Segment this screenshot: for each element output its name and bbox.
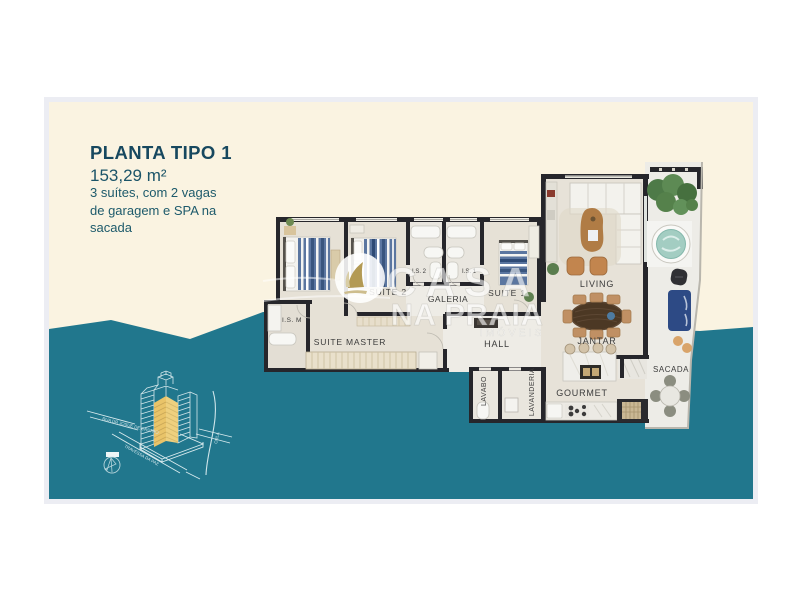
- svg-text:LIVING: LIVING: [580, 279, 614, 289]
- svg-text:SACADA: SACADA: [653, 365, 689, 374]
- svg-text:sacada: sacada: [90, 220, 133, 235]
- svg-text:GOURMET: GOURMET: [556, 388, 608, 398]
- svg-text:de garagem e SPA na: de garagem e SPA na: [90, 203, 217, 218]
- svg-text:SUITE MASTER: SUITE MASTER: [314, 337, 386, 347]
- svg-text:PLANTA TIPO 1: PLANTA TIPO 1: [90, 142, 232, 163]
- svg-text:HALL: HALL: [484, 339, 510, 349]
- svg-text:LAVABO: LAVABO: [481, 376, 488, 406]
- svg-text:LAVANDERIA: LAVANDERIA: [529, 368, 536, 416]
- svg-text:JANTAR: JANTAR: [577, 336, 616, 346]
- svg-text:IMÓVEIS: IMÓVEIS: [480, 326, 545, 339]
- svg-text:3 suítes, com 2 vagas: 3 suítes, com 2 vagas: [90, 185, 217, 200]
- svg-text:I.S. M: I.S. M: [282, 317, 302, 324]
- svg-text:153,29 m²: 153,29 m²: [90, 166, 167, 185]
